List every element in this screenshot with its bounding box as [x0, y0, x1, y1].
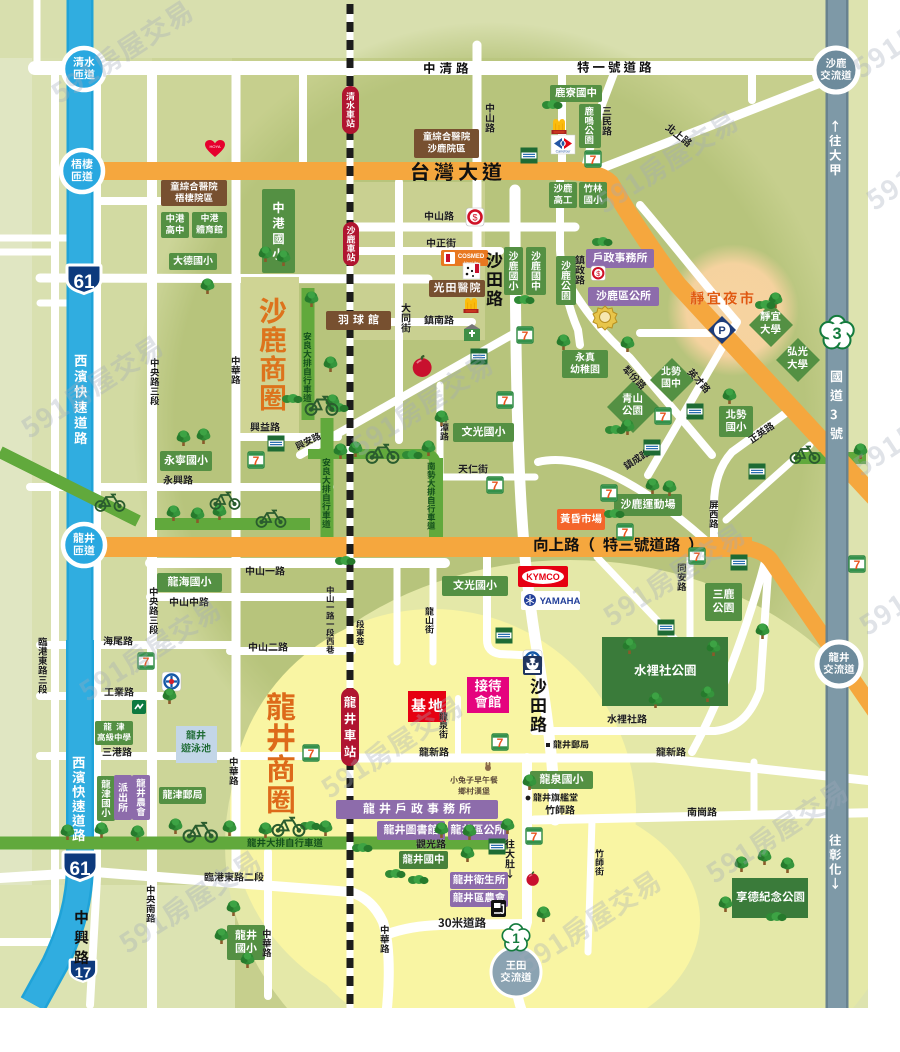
svg-text:KYMCO: KYMCO [526, 572, 560, 582]
svg-text:61: 61 [73, 272, 95, 293]
svg-text:YAMAHA: YAMAHA [540, 596, 581, 607]
svg-text:61: 61 [69, 859, 91, 880]
svg-text:1: 1 [512, 931, 520, 946]
svg-text:3: 3 [832, 325, 841, 343]
svg-text:17: 17 [75, 965, 91, 981]
